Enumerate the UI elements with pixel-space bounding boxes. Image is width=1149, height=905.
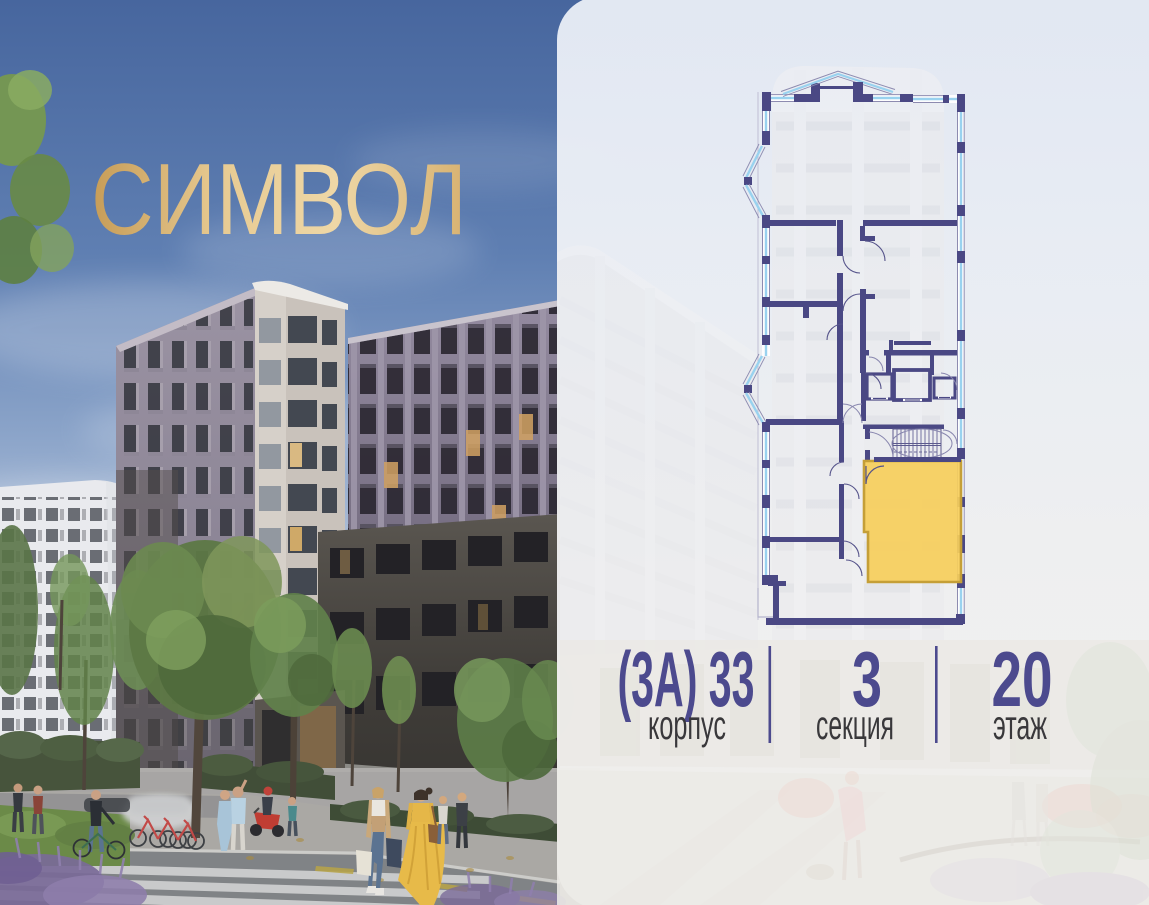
svg-text:СИМВОЛ: СИМВОЛ	[91, 144, 467, 256]
svg-text:секция: секция	[816, 702, 894, 748]
svg-text:корпус: корпус	[648, 702, 726, 748]
svg-text:этаж: этаж	[993, 702, 1047, 748]
